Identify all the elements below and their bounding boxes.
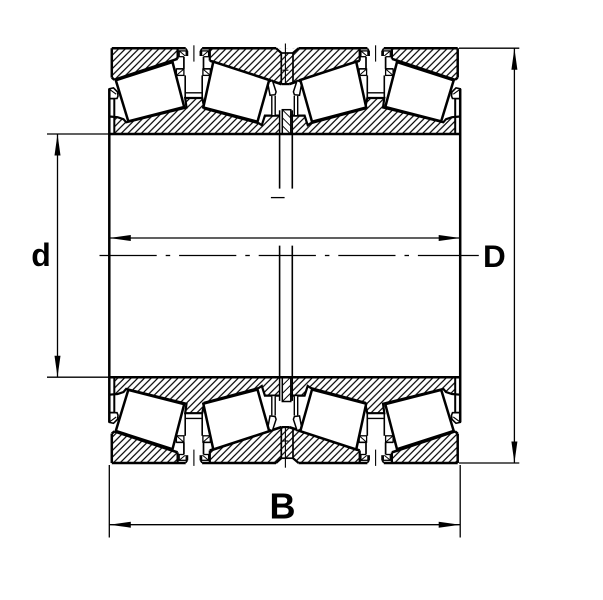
svg-text:d: d: [31, 237, 51, 273]
svg-text:D: D: [483, 238, 506, 274]
svg-text:B: B: [270, 486, 296, 527]
